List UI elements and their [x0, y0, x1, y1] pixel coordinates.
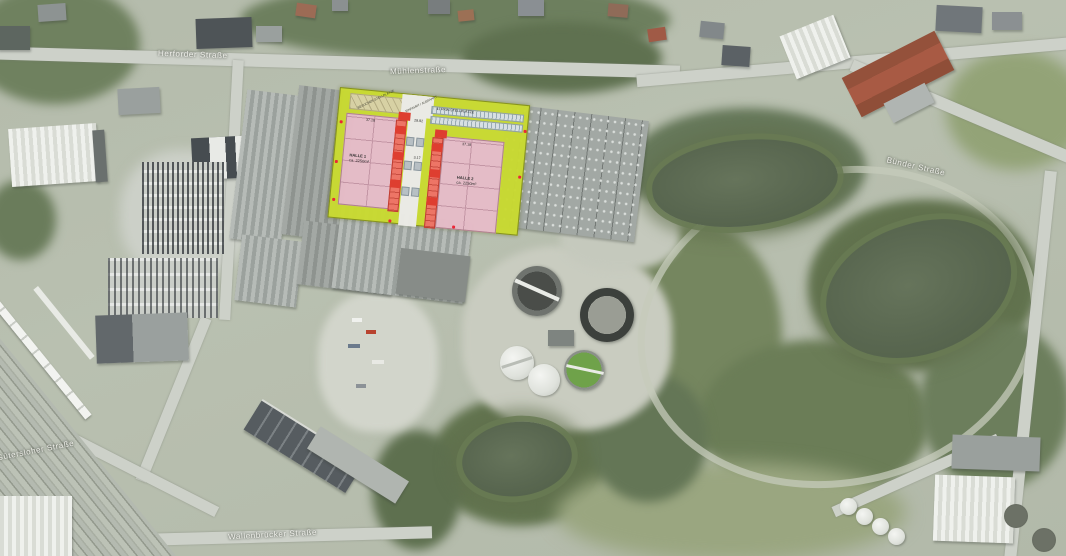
site-plan-overlay: BESUCHER-STELLPLÄTZE EINFAHRT / AUSFAHRT…	[327, 87, 530, 236]
warehouse-white	[8, 123, 100, 187]
loading-dock	[92, 130, 108, 183]
boundary-marker	[388, 219, 391, 222]
building	[699, 21, 725, 39]
module	[406, 137, 415, 147]
room-cell	[426, 197, 438, 206]
container	[356, 384, 366, 388]
storage-tank	[528, 364, 560, 396]
building	[295, 3, 317, 19]
building	[992, 12, 1022, 30]
dimension-label: 3.17	[413, 155, 420, 160]
car-lot	[108, 258, 218, 318]
container	[366, 330, 376, 334]
plant-building	[548, 330, 574, 346]
room-cell	[395, 126, 407, 135]
building	[37, 3, 66, 22]
building	[721, 45, 750, 67]
building-white	[0, 496, 72, 556]
building	[195, 17, 252, 49]
tank-dark	[1004, 504, 1028, 528]
clarifier-tank	[580, 288, 634, 342]
room-cell	[390, 179, 402, 188]
train	[33, 286, 94, 360]
building	[951, 434, 1040, 471]
building	[457, 9, 474, 22]
building	[0, 26, 30, 50]
silo	[872, 518, 889, 535]
room-cell	[398, 112, 411, 121]
room-cell	[429, 169, 441, 178]
building	[607, 3, 628, 18]
boundary-marker	[335, 160, 338, 163]
module	[411, 187, 420, 197]
dimension-label: 37.18	[462, 142, 471, 147]
room-cell	[435, 129, 448, 138]
building	[332, 0, 348, 11]
dimension-label: 29.92	[414, 118, 423, 123]
container	[352, 318, 362, 322]
building	[518, 0, 544, 16]
boundary-marker	[452, 225, 455, 228]
building	[95, 312, 189, 363]
silo	[888, 528, 905, 545]
module	[401, 186, 410, 196]
factory-hall	[234, 234, 304, 307]
aerial-map[interactable]: Herforder Straße Mühlenstraße Bünder Str…	[0, 0, 1066, 556]
tree-mass	[462, 22, 662, 94]
module	[416, 138, 425, 148]
room-cell	[431, 143, 443, 152]
building	[256, 26, 282, 42]
dimension-label: 37.18	[366, 118, 375, 123]
boundary-marker	[518, 176, 521, 179]
boundary-marker	[332, 198, 335, 201]
boundary-marker	[523, 130, 526, 133]
container	[348, 344, 360, 348]
silo	[856, 508, 873, 525]
module	[403, 160, 412, 170]
shed-dark	[395, 248, 470, 302]
tree-mass	[0, 180, 56, 260]
building	[935, 5, 982, 33]
room-cell	[392, 151, 404, 160]
building	[647, 27, 667, 42]
building	[117, 87, 160, 115]
module	[413, 161, 422, 171]
container	[372, 360, 384, 364]
tank-dark	[1032, 528, 1056, 552]
car-lot	[142, 162, 224, 254]
street-label: Mühlenstraße	[390, 65, 446, 76]
boundary-marker	[340, 120, 343, 123]
building-white	[933, 475, 1015, 544]
silo	[840, 498, 857, 515]
building	[428, 0, 450, 14]
